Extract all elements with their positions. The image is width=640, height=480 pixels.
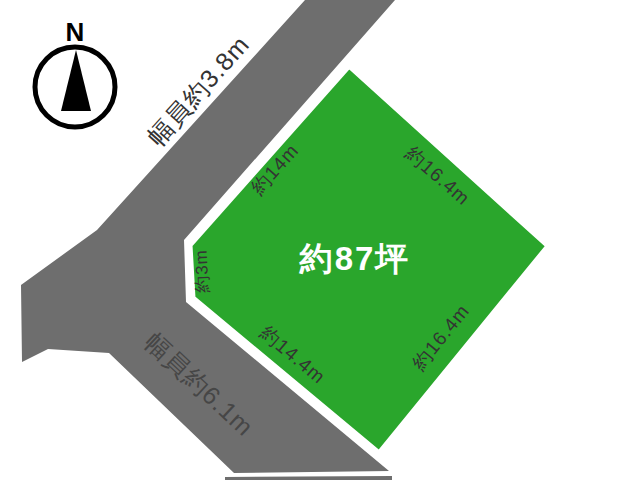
compass: N xyxy=(35,17,115,127)
plot-area-label: 約87坪 xyxy=(299,240,411,277)
edge-label-west: 約3m xyxy=(191,249,212,294)
north-arrow-icon xyxy=(61,50,91,111)
compass-north-label: N xyxy=(66,17,85,47)
road-bottom-sliver xyxy=(225,476,392,480)
land-plot-diagram: 幅員約3.8m 幅員約6.1m 約14m 約16.4m 約3m 約14.4m 約… xyxy=(0,0,640,480)
diagram-canvas: 幅員約3.8m 幅員約6.1m 約14m 約16.4m 約3m 約14.4m 約… xyxy=(0,0,640,480)
